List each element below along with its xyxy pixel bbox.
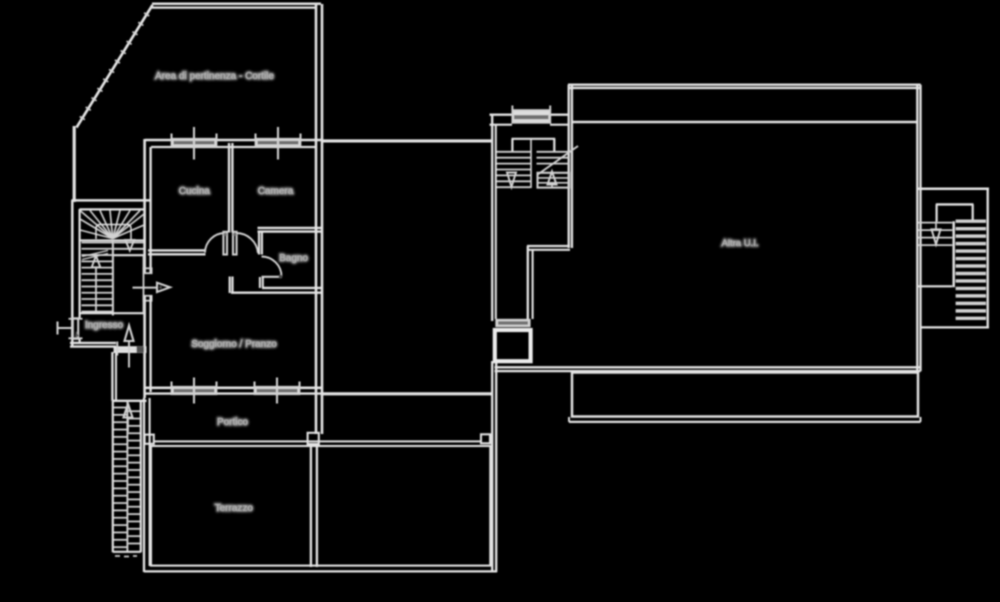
svg-text:Cucina: Cucina bbox=[179, 186, 211, 197]
svg-text:Soggiorno / Pranzo: Soggiorno / Pranzo bbox=[191, 339, 277, 350]
svg-text:Terrazzo: Terrazzo bbox=[215, 503, 254, 514]
svg-text:Area di pertinenza - Cortile: Area di pertinenza - Cortile bbox=[155, 71, 274, 82]
svg-text:Ingresso: Ingresso bbox=[85, 320, 124, 331]
svg-text:Portico: Portico bbox=[217, 417, 249, 428]
svg-text:Camera: Camera bbox=[258, 186, 294, 197]
svg-text:Bagno: Bagno bbox=[279, 253, 308, 264]
svg-text:Altra U.I.: Altra U.I. bbox=[722, 238, 759, 249]
